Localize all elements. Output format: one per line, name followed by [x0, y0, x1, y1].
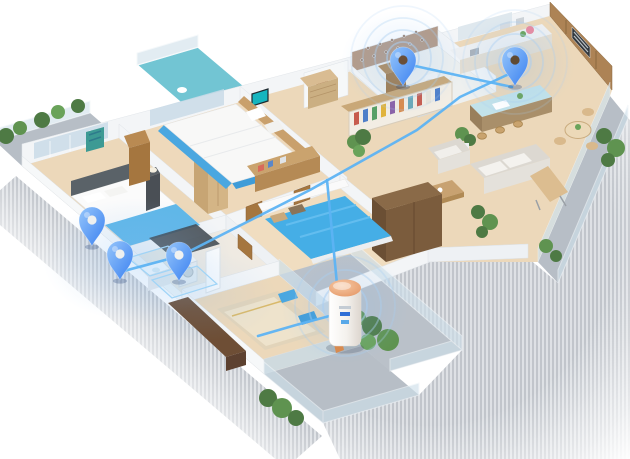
floor-plan-scene: 3D isometric apartment floor plan with s…	[0, 0, 630, 459]
device-indicator	[340, 312, 350, 316]
smart-hub-device[interactable]	[326, 280, 364, 354]
device-indicator	[341, 320, 349, 324]
device-label	[339, 306, 351, 309]
floor-plan-svg	[0, 0, 630, 459]
